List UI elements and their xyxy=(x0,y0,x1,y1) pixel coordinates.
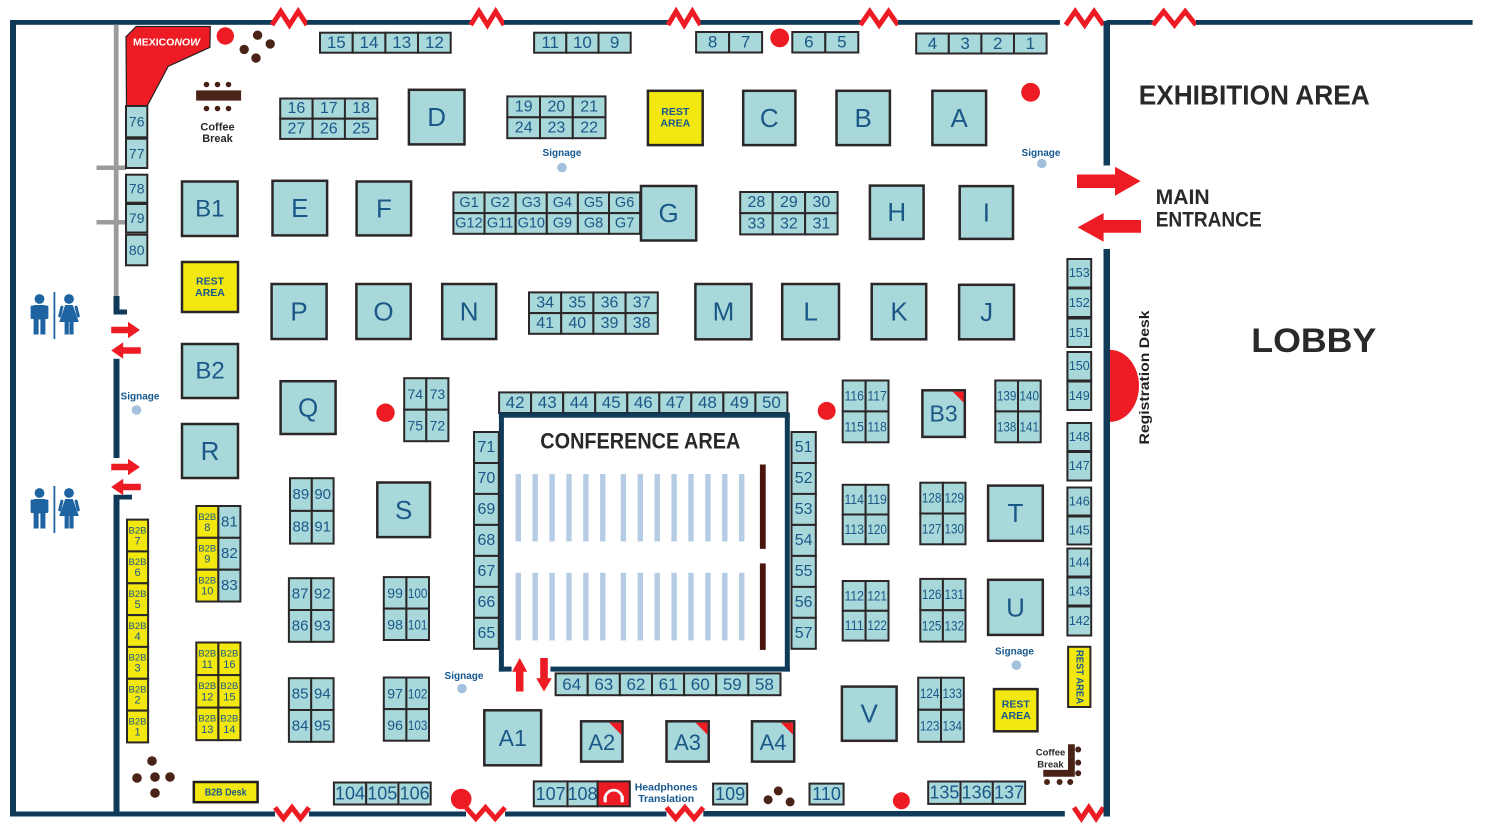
svg-text:114: 114 xyxy=(844,492,864,507)
svg-text:144: 144 xyxy=(1069,556,1090,570)
svg-text:99: 99 xyxy=(387,585,403,601)
svg-text:142: 142 xyxy=(1069,614,1090,628)
svg-text:A: A xyxy=(951,103,969,133)
svg-text:97: 97 xyxy=(387,685,403,701)
svg-text:18: 18 xyxy=(352,100,370,117)
svg-text:G6: G6 xyxy=(615,195,634,211)
svg-text:128: 128 xyxy=(922,491,942,506)
svg-text:96: 96 xyxy=(387,717,403,733)
svg-text:95: 95 xyxy=(314,717,331,734)
svg-text:8: 8 xyxy=(708,33,717,52)
svg-text:143: 143 xyxy=(1069,585,1090,599)
svg-text:F: F xyxy=(376,193,392,223)
svg-text:124: 124 xyxy=(920,686,940,701)
svg-text:G8: G8 xyxy=(584,216,603,232)
svg-text:141: 141 xyxy=(1020,419,1040,434)
svg-text:104: 104 xyxy=(335,784,365,804)
svg-text:2: 2 xyxy=(993,34,1002,53)
svg-text:A2: A2 xyxy=(588,730,615,755)
svg-text:24: 24 xyxy=(515,119,533,136)
svg-text:4: 4 xyxy=(134,631,140,643)
svg-text:102: 102 xyxy=(408,685,428,701)
svg-text:30: 30 xyxy=(813,194,831,211)
svg-text:G4: G4 xyxy=(553,195,572,211)
svg-text:107: 107 xyxy=(536,784,566,804)
svg-text:10: 10 xyxy=(573,33,592,52)
svg-text:67: 67 xyxy=(478,563,496,580)
svg-text:82: 82 xyxy=(221,545,238,562)
svg-text:19: 19 xyxy=(515,98,533,115)
svg-text:AREA: AREA xyxy=(195,287,225,299)
svg-text:151: 151 xyxy=(1069,326,1090,340)
svg-text:100: 100 xyxy=(408,585,428,601)
svg-text:126: 126 xyxy=(922,587,942,602)
svg-text:94: 94 xyxy=(314,686,331,703)
svg-text:61: 61 xyxy=(659,675,678,694)
svg-text:K: K xyxy=(890,297,908,327)
svg-text:10: 10 xyxy=(201,586,213,598)
svg-text:5: 5 xyxy=(134,599,140,611)
svg-text:C: C xyxy=(760,103,779,133)
svg-text:4: 4 xyxy=(928,34,937,53)
svg-text:38: 38 xyxy=(633,315,651,332)
svg-text:13: 13 xyxy=(201,724,213,736)
svg-text:64: 64 xyxy=(562,675,581,694)
svg-text:I: I xyxy=(983,198,990,228)
svg-text:39: 39 xyxy=(601,315,619,332)
svg-text:E: E xyxy=(291,193,308,223)
svg-text:Signage: Signage xyxy=(445,671,484,682)
svg-text:98: 98 xyxy=(387,616,403,632)
svg-text:LOBBY: LOBBY xyxy=(1251,322,1376,360)
svg-text:70: 70 xyxy=(478,470,496,487)
svg-text:130: 130 xyxy=(945,521,965,536)
svg-text:140: 140 xyxy=(1020,389,1040,404)
svg-text:146: 146 xyxy=(1069,495,1090,509)
svg-text:116: 116 xyxy=(844,389,864,404)
svg-text:138: 138 xyxy=(997,419,1017,434)
svg-text:P: P xyxy=(290,297,307,327)
svg-text:52: 52 xyxy=(795,470,813,487)
svg-text:113: 113 xyxy=(844,522,864,537)
svg-text:Q: Q xyxy=(298,393,318,423)
svg-text:103: 103 xyxy=(408,717,428,733)
svg-text:77: 77 xyxy=(129,145,145,161)
svg-text:88: 88 xyxy=(293,519,310,536)
svg-text:17: 17 xyxy=(320,100,338,117)
svg-text:28: 28 xyxy=(748,194,766,211)
svg-text:81: 81 xyxy=(221,513,238,530)
svg-text:16: 16 xyxy=(223,659,235,671)
svg-text:55: 55 xyxy=(795,563,813,580)
svg-text:26: 26 xyxy=(320,120,338,137)
svg-text:65: 65 xyxy=(478,625,496,642)
svg-text:REST: REST xyxy=(1002,699,1031,711)
svg-text:REST AREA: REST AREA xyxy=(1074,650,1085,704)
svg-text:131: 131 xyxy=(945,587,965,602)
svg-text:REST: REST xyxy=(196,276,225,288)
svg-text:73: 73 xyxy=(430,386,446,402)
svg-text:Coffee: Coffee xyxy=(200,122,234,134)
svg-text:Registration Desk: Registration Desk xyxy=(1137,310,1152,445)
svg-text:7: 7 xyxy=(741,33,750,52)
svg-text:Break: Break xyxy=(1037,760,1064,771)
svg-text:58: 58 xyxy=(755,675,774,694)
svg-text:11: 11 xyxy=(202,659,213,671)
svg-text:AREA: AREA xyxy=(1001,710,1031,722)
svg-text:Coffee: Coffee xyxy=(1036,747,1066,758)
svg-text:5: 5 xyxy=(837,33,846,52)
svg-text:R: R xyxy=(201,436,220,466)
svg-text:44: 44 xyxy=(570,393,589,412)
svg-text:71: 71 xyxy=(478,439,496,456)
svg-text:121: 121 xyxy=(867,588,887,603)
svg-text:7: 7 xyxy=(134,535,140,547)
svg-text:134: 134 xyxy=(943,718,963,733)
svg-text:57: 57 xyxy=(795,625,813,642)
svg-text:11: 11 xyxy=(541,33,559,52)
svg-text:74: 74 xyxy=(408,386,424,402)
svg-text:12: 12 xyxy=(201,691,213,703)
svg-text:31: 31 xyxy=(813,215,831,232)
svg-text:13: 13 xyxy=(392,33,411,52)
svg-text:118: 118 xyxy=(867,419,887,434)
svg-text:92: 92 xyxy=(314,586,331,603)
svg-text:47: 47 xyxy=(666,393,685,412)
svg-text:32: 32 xyxy=(780,215,798,232)
svg-text:EXHIBITION AREA: EXHIBITION AREA xyxy=(1139,80,1370,111)
svg-text:147: 147 xyxy=(1069,459,1090,473)
svg-text:G11: G11 xyxy=(487,216,513,232)
svg-text:119: 119 xyxy=(867,492,887,507)
svg-text:REST: REST xyxy=(661,106,690,118)
svg-text:G2: G2 xyxy=(490,195,509,211)
svg-text:23: 23 xyxy=(548,119,566,136)
svg-text:149: 149 xyxy=(1069,389,1090,403)
svg-text:Signage: Signage xyxy=(995,647,1034,658)
svg-text:37: 37 xyxy=(633,294,651,311)
svg-text:Translation: Translation xyxy=(638,793,694,805)
svg-text:V: V xyxy=(861,699,879,729)
svg-text:3: 3 xyxy=(960,34,969,53)
svg-text:6: 6 xyxy=(804,33,813,52)
svg-text:59: 59 xyxy=(723,675,742,694)
svg-text:20: 20 xyxy=(548,98,566,115)
svg-text:66: 66 xyxy=(478,594,496,611)
svg-text:136: 136 xyxy=(962,783,992,803)
svg-text:9: 9 xyxy=(610,33,619,52)
svg-text:14: 14 xyxy=(223,724,235,736)
svg-text:H: H xyxy=(887,197,906,227)
svg-text:56: 56 xyxy=(795,594,813,611)
svg-text:111: 111 xyxy=(844,618,864,633)
svg-text:9: 9 xyxy=(204,554,210,566)
svg-text:145: 145 xyxy=(1069,524,1090,538)
svg-text:U: U xyxy=(1006,592,1025,622)
svg-text:35: 35 xyxy=(568,294,586,311)
svg-text:42: 42 xyxy=(506,393,525,412)
svg-text:3: 3 xyxy=(134,663,140,675)
svg-text:Signage: Signage xyxy=(1022,148,1061,159)
svg-text:B3: B3 xyxy=(930,401,958,427)
svg-text:A1: A1 xyxy=(499,725,527,751)
svg-text:60: 60 xyxy=(691,675,710,694)
svg-text:117: 117 xyxy=(867,389,887,404)
svg-text:D: D xyxy=(427,102,446,132)
svg-text:78: 78 xyxy=(129,181,145,197)
svg-text:69: 69 xyxy=(478,501,496,518)
svg-text:CONFERENCE AREA: CONFERENCE AREA xyxy=(540,429,740,454)
svg-text:106: 106 xyxy=(400,784,430,804)
svg-text:109: 109 xyxy=(715,784,745,804)
svg-text:79: 79 xyxy=(129,210,145,226)
svg-text:152: 152 xyxy=(1069,296,1090,310)
svg-text:G3: G3 xyxy=(522,195,541,211)
svg-text:6: 6 xyxy=(134,567,140,579)
svg-text:45: 45 xyxy=(602,393,621,412)
svg-text:34: 34 xyxy=(536,294,554,311)
svg-text:84: 84 xyxy=(292,717,309,734)
svg-text:12: 12 xyxy=(425,33,444,52)
svg-text:122: 122 xyxy=(867,618,887,633)
svg-text:A4: A4 xyxy=(760,730,787,755)
svg-text:8: 8 xyxy=(204,522,210,534)
svg-text:21: 21 xyxy=(580,98,598,115)
svg-text:2: 2 xyxy=(134,695,140,707)
svg-text:148: 148 xyxy=(1069,430,1090,444)
svg-text:Signage: Signage xyxy=(543,148,582,159)
svg-text:B2B Desk: B2B Desk xyxy=(205,787,247,799)
svg-text:112: 112 xyxy=(844,588,864,603)
svg-text:62: 62 xyxy=(626,675,645,694)
svg-text:80: 80 xyxy=(129,242,145,258)
svg-text:86: 86 xyxy=(292,617,309,634)
svg-text:G10: G10 xyxy=(518,216,545,232)
svg-text:101: 101 xyxy=(408,616,428,632)
svg-text:G1: G1 xyxy=(459,195,478,211)
svg-text:132: 132 xyxy=(945,618,965,633)
svg-text:33: 33 xyxy=(748,215,766,232)
svg-text:125: 125 xyxy=(922,618,942,633)
svg-text:Break: Break xyxy=(202,133,233,145)
svg-text:15: 15 xyxy=(223,691,235,703)
svg-text:15: 15 xyxy=(327,33,346,52)
svg-text:76: 76 xyxy=(129,114,145,130)
svg-text:129: 129 xyxy=(945,491,965,506)
svg-text:L: L xyxy=(803,297,817,327)
svg-text:53: 53 xyxy=(795,501,813,518)
svg-text:50: 50 xyxy=(762,393,781,412)
svg-text:27: 27 xyxy=(288,120,306,137)
svg-text:133: 133 xyxy=(943,686,963,701)
svg-text:J: J xyxy=(980,297,993,327)
svg-text:14: 14 xyxy=(360,33,379,52)
svg-text:150: 150 xyxy=(1069,359,1090,373)
svg-text:51: 51 xyxy=(795,439,813,456)
svg-text:110: 110 xyxy=(812,784,841,804)
svg-text:S: S xyxy=(395,495,412,525)
svg-text:G: G xyxy=(658,198,678,228)
svg-text:B1: B1 xyxy=(195,195,224,222)
svg-text:G5: G5 xyxy=(584,195,603,211)
svg-text:Headphones: Headphones xyxy=(635,782,698,794)
svg-text:B2: B2 xyxy=(195,358,224,385)
svg-text:1: 1 xyxy=(1026,34,1035,53)
svg-text:72: 72 xyxy=(430,417,446,433)
svg-text:135: 135 xyxy=(929,783,959,803)
svg-text:87: 87 xyxy=(292,586,309,603)
svg-text:91: 91 xyxy=(314,519,331,536)
svg-text:127: 127 xyxy=(922,521,942,536)
svg-text:63: 63 xyxy=(594,675,613,694)
svg-text:G9: G9 xyxy=(553,216,572,232)
svg-text:137: 137 xyxy=(994,783,1024,803)
svg-text:89: 89 xyxy=(293,486,310,503)
svg-text:43: 43 xyxy=(538,393,557,412)
svg-text:139: 139 xyxy=(997,389,1017,404)
svg-text:MEXICONOW: MEXICONOW xyxy=(133,37,201,49)
svg-text:115: 115 xyxy=(844,419,864,434)
svg-text:90: 90 xyxy=(314,486,331,503)
svg-text:36: 36 xyxy=(601,294,619,311)
svg-text:22: 22 xyxy=(580,119,598,136)
svg-text:M: M xyxy=(713,297,735,327)
svg-text:ENTRANCE: ENTRANCE xyxy=(1156,209,1262,232)
svg-text:54: 54 xyxy=(795,532,813,549)
svg-text:16: 16 xyxy=(288,100,306,117)
svg-text:Signage: Signage xyxy=(121,392,160,403)
svg-text:T: T xyxy=(1008,498,1024,528)
svg-text:93: 93 xyxy=(314,617,331,634)
svg-text:25: 25 xyxy=(352,120,370,137)
svg-text:O: O xyxy=(373,297,393,327)
svg-text:41: 41 xyxy=(536,315,554,332)
svg-text:1: 1 xyxy=(134,726,140,738)
svg-text:40: 40 xyxy=(568,315,586,332)
svg-text:G12: G12 xyxy=(455,216,482,232)
svg-text:AREA: AREA xyxy=(660,118,690,130)
svg-text:N: N xyxy=(460,297,479,327)
svg-text:A3: A3 xyxy=(674,730,701,755)
svg-text:B: B xyxy=(855,103,872,133)
svg-text:123: 123 xyxy=(920,718,940,733)
svg-text:108: 108 xyxy=(567,784,597,804)
svg-text:46: 46 xyxy=(634,393,653,412)
svg-text:G7: G7 xyxy=(615,216,634,232)
svg-text:29: 29 xyxy=(780,194,798,211)
svg-text:75: 75 xyxy=(408,417,424,433)
svg-text:105: 105 xyxy=(367,784,397,804)
svg-text:MAIN: MAIN xyxy=(1156,186,1210,209)
svg-text:120: 120 xyxy=(867,522,887,537)
svg-text:49: 49 xyxy=(730,393,749,412)
svg-text:68: 68 xyxy=(478,532,496,549)
svg-text:85: 85 xyxy=(292,686,309,703)
svg-text:83: 83 xyxy=(221,577,238,594)
svg-text:153: 153 xyxy=(1069,266,1090,280)
svg-text:48: 48 xyxy=(698,393,717,412)
